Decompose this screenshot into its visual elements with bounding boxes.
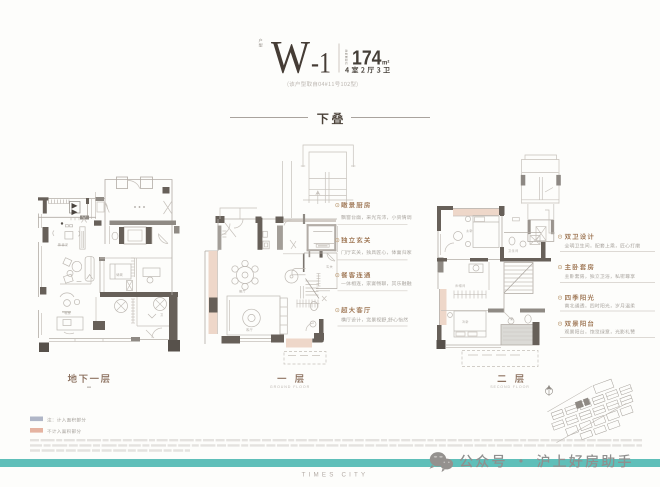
svg-text:TIMES CITY: TIMES CITY bbox=[302, 472, 369, 479]
svg-text:m²: m² bbox=[382, 59, 389, 66]
svg-text:GROUND FLOOR: GROUND FLOOR bbox=[270, 385, 310, 389]
svg-text:W: W bbox=[271, 32, 311, 84]
svg-text:-1: -1 bbox=[311, 46, 331, 79]
svg-text:SECOND FLOOR: SECOND FLOOR bbox=[490, 385, 530, 389]
svg-text:174: 174 bbox=[352, 47, 382, 70]
